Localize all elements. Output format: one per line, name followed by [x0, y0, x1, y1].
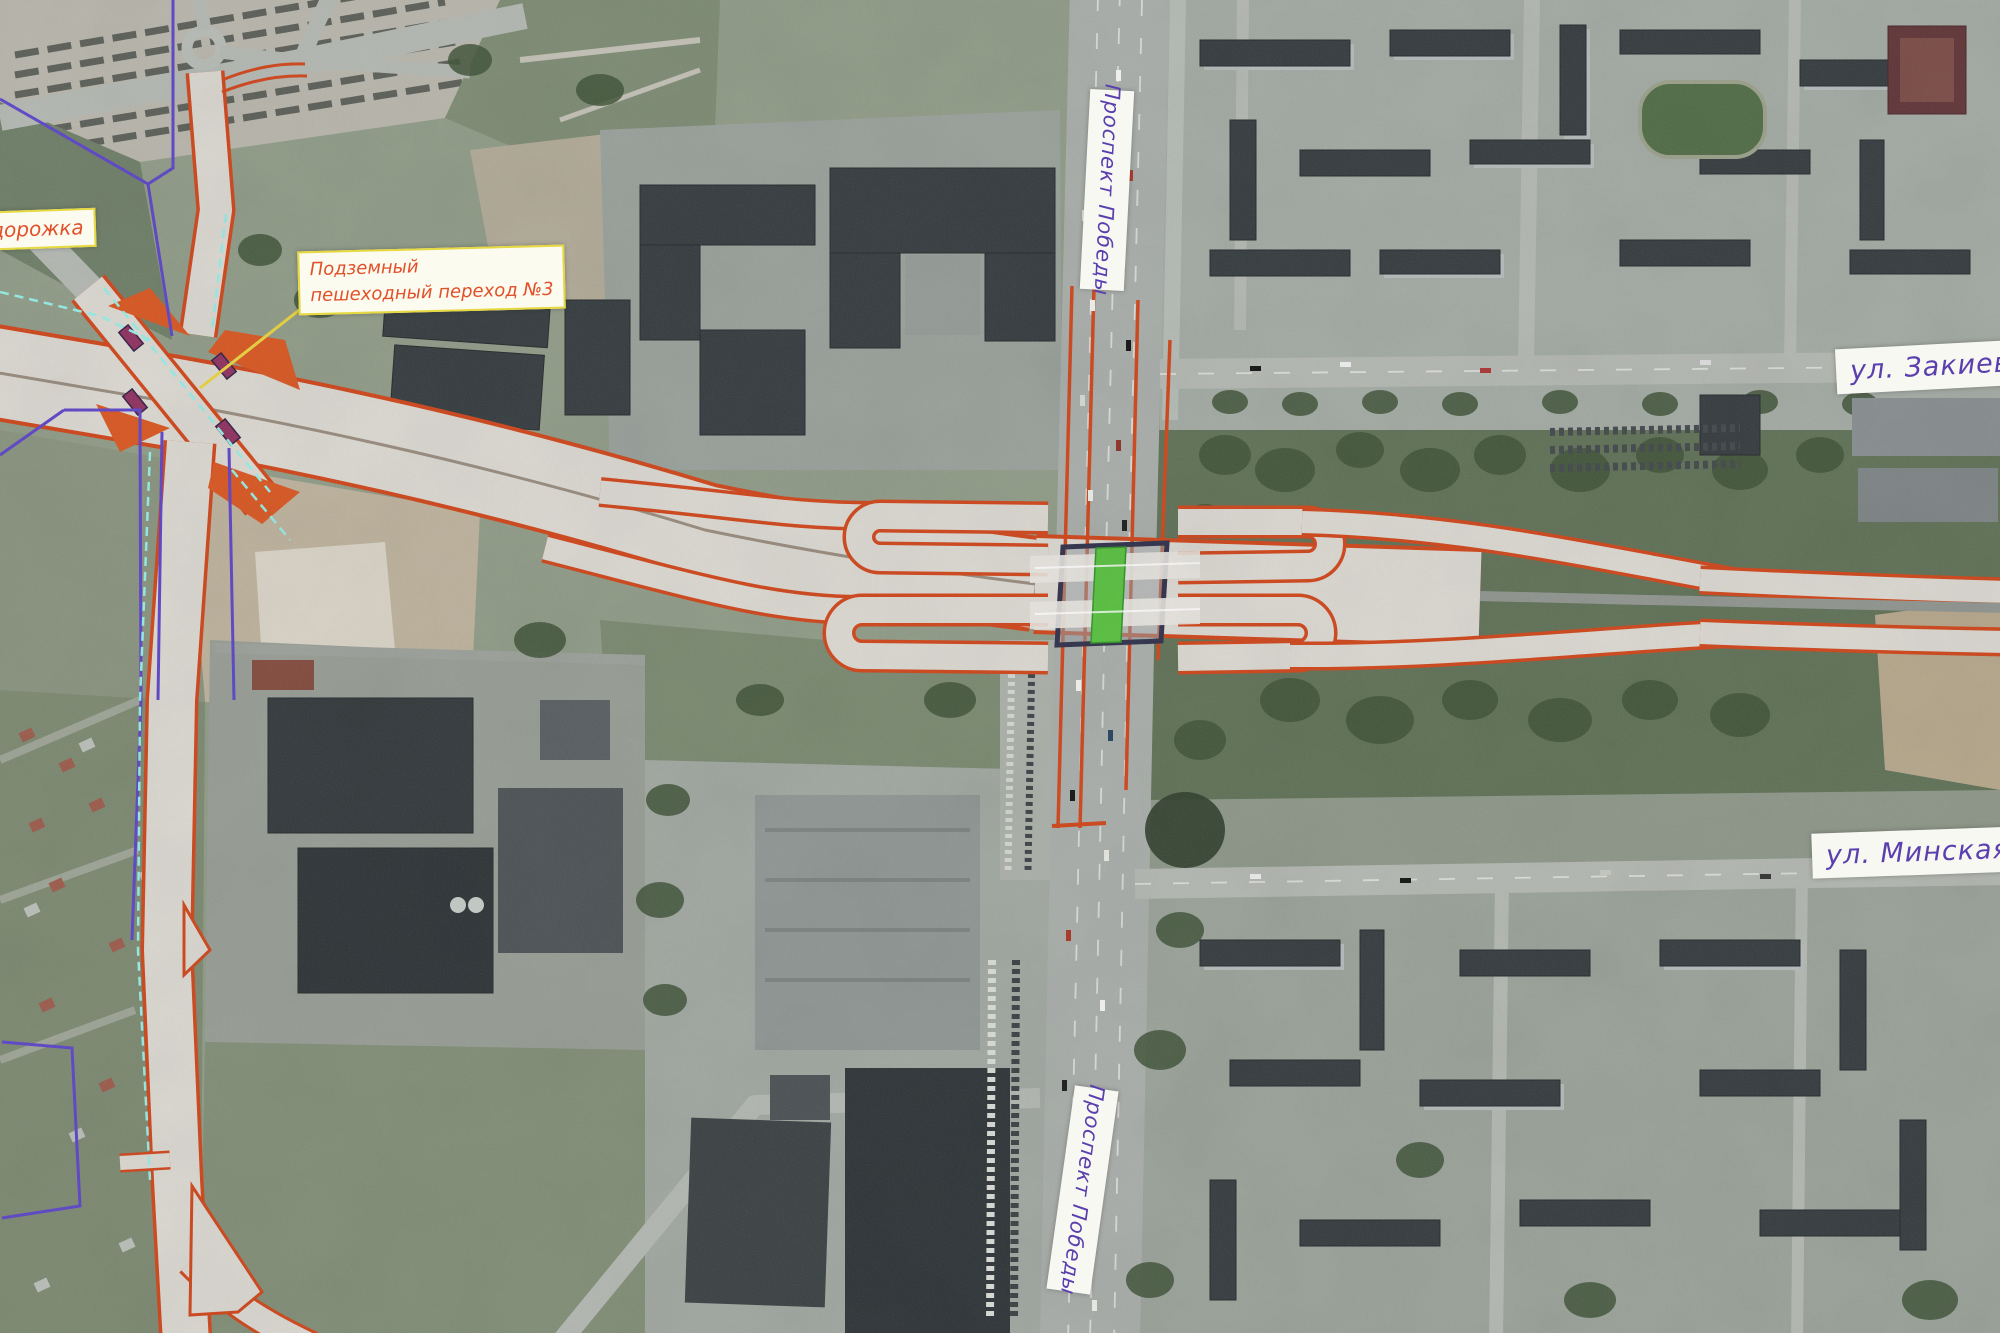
label-street-minskaya: ул. Минская — [1811, 826, 2000, 878]
plan-photo: одорожка Подземный пешеходный переход №3… — [0, 0, 2000, 1333]
label-prospekt-pobedy-top-text: Проспект Победы — [1089, 83, 1124, 296]
label-bike-path: одорожка — [0, 208, 96, 251]
label-street-minskaya-text: ул. Минская — [1826, 834, 2000, 871]
photo-grain — [0, 0, 2000, 1333]
satellite-map — [0, 0, 2000, 1333]
label-underpass: Подземный пешеходный переход №3 — [297, 245, 566, 316]
label-underpass-line2: пешеходный переход №3 — [310, 277, 554, 309]
label-street-zakieva-text: ул. Закиева — [1849, 346, 2000, 386]
label-bike-path-text: одорожка — [0, 215, 84, 243]
